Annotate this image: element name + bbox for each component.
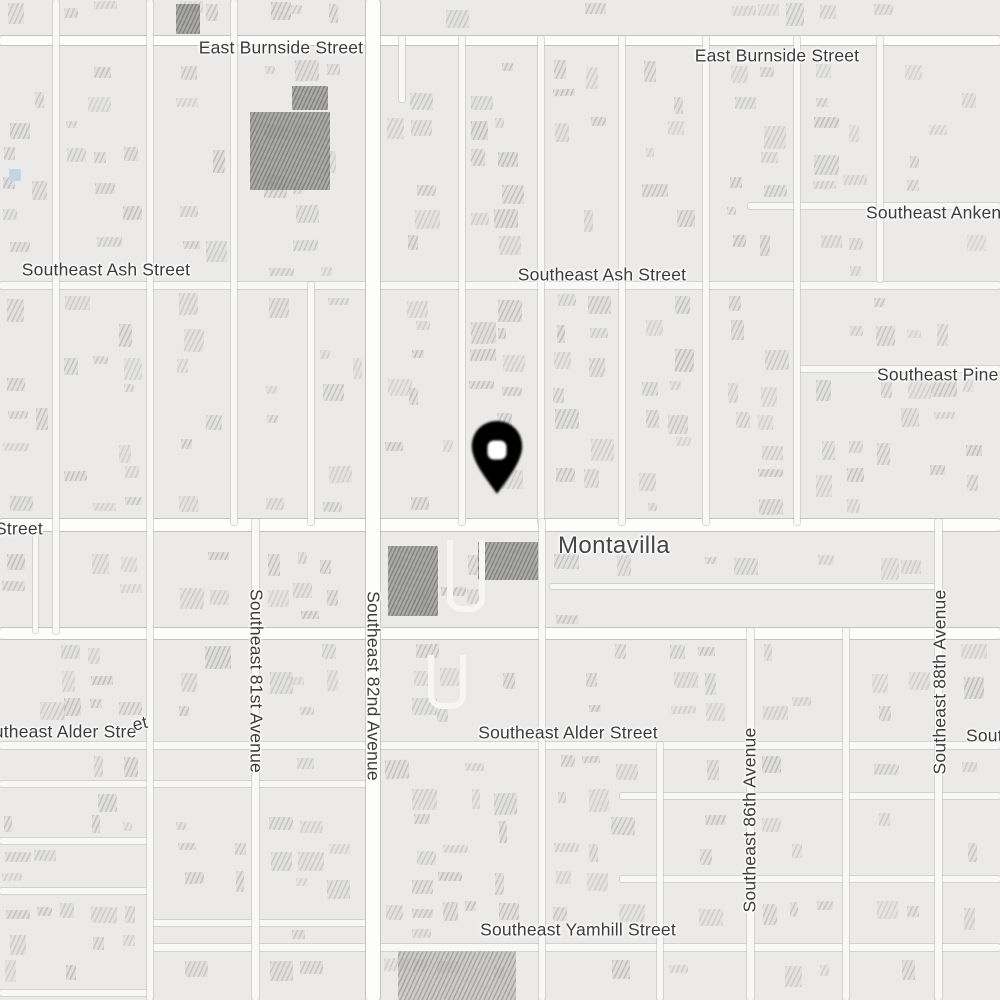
building xyxy=(10,123,30,139)
map-canvas[interactable]: East Burnside StreetEast Burnside Street… xyxy=(0,0,1000,1000)
building xyxy=(64,8,78,19)
building xyxy=(668,121,684,135)
minor-road xyxy=(550,584,935,589)
building xyxy=(814,117,839,128)
building xyxy=(553,388,564,403)
building xyxy=(813,181,836,190)
building xyxy=(612,960,630,979)
building xyxy=(556,325,565,344)
building xyxy=(582,755,600,763)
building xyxy=(849,266,860,276)
minor-road xyxy=(150,944,1000,951)
building xyxy=(267,589,288,606)
building xyxy=(758,469,783,477)
building xyxy=(66,121,77,128)
building xyxy=(792,844,802,858)
building xyxy=(671,706,696,715)
building xyxy=(40,702,65,721)
building xyxy=(707,760,720,780)
building xyxy=(764,184,787,197)
building xyxy=(323,502,342,512)
large-building xyxy=(388,546,438,616)
building xyxy=(472,789,480,809)
building xyxy=(646,410,659,428)
building xyxy=(494,792,517,815)
building xyxy=(124,384,134,393)
large-building xyxy=(398,946,516,1000)
pool-water xyxy=(9,169,21,181)
building xyxy=(590,328,608,338)
building xyxy=(465,901,476,911)
building xyxy=(123,822,132,831)
large-building xyxy=(250,112,330,190)
building xyxy=(902,960,915,980)
building xyxy=(554,60,566,79)
service-road-loop xyxy=(428,655,466,709)
building xyxy=(94,1,117,10)
building xyxy=(704,815,725,825)
building xyxy=(675,295,691,313)
building xyxy=(816,98,828,108)
building xyxy=(6,909,30,918)
large-building xyxy=(478,542,538,580)
building xyxy=(471,96,493,110)
building xyxy=(205,646,231,669)
building xyxy=(554,409,578,429)
building xyxy=(560,755,574,768)
building xyxy=(269,817,293,830)
building xyxy=(124,497,141,506)
building xyxy=(213,150,225,173)
building xyxy=(872,674,888,694)
building xyxy=(35,92,44,108)
building xyxy=(93,503,116,512)
building xyxy=(642,382,658,396)
building xyxy=(8,3,24,24)
building xyxy=(329,4,339,23)
building xyxy=(591,439,614,461)
building xyxy=(590,117,605,126)
building xyxy=(300,821,323,833)
building xyxy=(963,676,984,698)
building xyxy=(907,179,919,191)
building xyxy=(904,65,921,80)
building xyxy=(498,152,518,167)
building xyxy=(268,298,288,318)
building xyxy=(61,645,80,660)
building xyxy=(907,330,921,338)
building xyxy=(470,322,495,345)
building xyxy=(729,296,741,311)
building xyxy=(91,554,108,574)
minor-road xyxy=(459,36,465,525)
building xyxy=(584,210,593,232)
building xyxy=(3,209,17,220)
building xyxy=(176,822,186,830)
building xyxy=(961,644,987,659)
minor-road xyxy=(620,793,1000,799)
neighborhood-label: Montavilla xyxy=(558,532,670,560)
service-road-loop xyxy=(447,540,485,612)
building xyxy=(91,676,113,686)
building xyxy=(178,706,188,716)
minor-road xyxy=(657,742,663,1000)
building xyxy=(298,552,307,565)
building xyxy=(384,759,408,778)
building xyxy=(784,966,802,987)
building xyxy=(498,903,518,920)
building xyxy=(65,296,90,310)
building xyxy=(327,64,340,75)
building xyxy=(183,240,200,248)
building xyxy=(498,300,522,322)
building xyxy=(761,387,777,407)
building xyxy=(586,66,598,88)
building xyxy=(705,557,718,565)
minor-road xyxy=(231,0,237,525)
building xyxy=(646,148,655,157)
building xyxy=(877,443,890,465)
building xyxy=(408,235,418,250)
building xyxy=(735,412,750,429)
building xyxy=(92,815,100,833)
building xyxy=(209,590,228,605)
building xyxy=(119,445,131,463)
building xyxy=(820,965,829,976)
building xyxy=(352,358,361,379)
building xyxy=(822,440,836,459)
building xyxy=(499,236,521,255)
building xyxy=(705,702,724,720)
building xyxy=(414,814,430,824)
street-label-burnside-west: East Burnside Street xyxy=(199,38,364,59)
building xyxy=(270,671,293,693)
minor-road xyxy=(843,628,849,1000)
building xyxy=(760,234,771,255)
building xyxy=(178,842,196,849)
building xyxy=(293,240,318,252)
building xyxy=(880,558,898,580)
minor-road xyxy=(794,36,800,525)
building xyxy=(417,184,437,196)
building xyxy=(206,241,227,262)
large-building xyxy=(176,4,200,34)
building xyxy=(60,903,74,918)
building xyxy=(873,298,884,307)
building xyxy=(556,871,571,884)
building xyxy=(417,850,437,865)
building xyxy=(790,902,799,918)
building xyxy=(269,268,294,276)
building xyxy=(415,210,440,230)
building xyxy=(32,181,47,200)
building xyxy=(849,237,863,249)
building xyxy=(10,242,30,252)
building xyxy=(874,4,893,15)
building xyxy=(675,349,694,372)
building xyxy=(67,148,87,162)
building xyxy=(7,299,24,322)
building xyxy=(266,415,278,424)
large-building xyxy=(292,86,328,110)
building xyxy=(849,441,863,454)
street-label-ankeny: Southeast Ankeny Street xyxy=(866,203,1000,224)
building xyxy=(849,125,859,142)
building xyxy=(4,816,12,832)
building xyxy=(471,213,489,225)
building xyxy=(185,961,208,978)
building xyxy=(761,152,778,163)
building xyxy=(471,121,489,140)
building xyxy=(5,960,16,982)
building xyxy=(124,466,138,478)
building xyxy=(730,177,743,188)
building xyxy=(6,553,25,569)
building xyxy=(3,442,29,450)
building xyxy=(179,293,198,315)
minor-road xyxy=(147,0,153,1000)
building xyxy=(470,349,496,362)
building xyxy=(764,349,788,369)
building xyxy=(699,909,723,926)
building xyxy=(408,388,417,405)
building xyxy=(758,415,774,431)
building xyxy=(300,961,323,974)
building xyxy=(181,672,197,692)
building xyxy=(184,329,205,352)
building xyxy=(967,474,978,491)
building xyxy=(644,61,657,82)
building xyxy=(184,872,203,884)
building xyxy=(294,60,319,82)
building xyxy=(498,821,507,843)
building xyxy=(271,2,291,20)
building xyxy=(442,902,458,922)
building xyxy=(327,670,338,691)
building xyxy=(673,672,697,689)
building xyxy=(674,96,683,113)
minor-road xyxy=(399,36,405,102)
building xyxy=(588,789,609,812)
building xyxy=(64,698,81,717)
building xyxy=(176,98,199,108)
building xyxy=(910,156,919,168)
building xyxy=(792,697,811,706)
building xyxy=(90,699,102,708)
building xyxy=(764,644,772,661)
minor-road xyxy=(0,990,150,996)
building xyxy=(268,554,280,576)
building xyxy=(5,851,31,861)
building xyxy=(320,560,332,574)
building xyxy=(320,350,330,360)
minor-road xyxy=(33,525,38,633)
street-label-pine: Southeast Pine Street xyxy=(877,365,1000,386)
building xyxy=(180,206,198,217)
building xyxy=(763,904,778,926)
building xyxy=(900,560,921,575)
building xyxy=(589,358,605,377)
building xyxy=(705,673,717,696)
building xyxy=(235,843,246,855)
building xyxy=(412,909,433,919)
building xyxy=(879,813,890,826)
street-label-ave-81st: Southeast 81st Avenue xyxy=(246,589,267,773)
building xyxy=(731,320,744,340)
building xyxy=(329,844,350,854)
building xyxy=(967,235,986,251)
building xyxy=(879,706,891,721)
building xyxy=(762,446,783,460)
building xyxy=(386,118,404,140)
building xyxy=(554,843,579,852)
building xyxy=(66,965,76,980)
building xyxy=(900,408,918,428)
building xyxy=(615,644,627,659)
building xyxy=(4,147,15,160)
building xyxy=(759,498,783,515)
building xyxy=(8,410,28,418)
building xyxy=(763,706,788,720)
building xyxy=(64,358,78,375)
building xyxy=(446,10,469,28)
building xyxy=(37,906,52,916)
building xyxy=(443,844,468,852)
building xyxy=(558,792,566,803)
building xyxy=(588,296,611,314)
building xyxy=(465,763,484,771)
building xyxy=(503,354,526,371)
building xyxy=(181,439,192,449)
building xyxy=(469,381,494,390)
building xyxy=(552,89,574,97)
building xyxy=(323,384,344,401)
building xyxy=(206,4,219,22)
building xyxy=(179,588,204,610)
building xyxy=(785,3,804,26)
building xyxy=(10,935,26,955)
building xyxy=(670,381,681,390)
building xyxy=(411,497,429,511)
building xyxy=(10,496,33,511)
building xyxy=(122,935,134,946)
building xyxy=(327,880,350,899)
building xyxy=(494,118,503,128)
building xyxy=(179,496,198,512)
minor-road xyxy=(308,282,314,525)
building xyxy=(762,818,782,832)
building xyxy=(93,937,104,950)
building xyxy=(2,872,22,881)
building xyxy=(584,469,600,488)
building xyxy=(322,644,337,659)
building xyxy=(266,497,284,509)
building xyxy=(412,880,433,894)
building xyxy=(88,648,100,664)
building xyxy=(298,851,324,870)
building xyxy=(328,298,349,306)
major-road xyxy=(366,0,380,1000)
building xyxy=(732,6,757,17)
building xyxy=(120,584,142,594)
building xyxy=(502,63,513,72)
building xyxy=(585,2,606,13)
building xyxy=(964,908,976,930)
building xyxy=(64,470,88,481)
building xyxy=(876,326,895,346)
building xyxy=(758,4,779,16)
building xyxy=(934,412,955,420)
building xyxy=(62,671,75,692)
building xyxy=(670,645,685,659)
building xyxy=(929,125,947,136)
building xyxy=(847,499,860,513)
street-label-edge-southeast: Southeast xyxy=(966,726,1000,747)
building xyxy=(495,873,504,895)
building xyxy=(412,929,431,938)
building xyxy=(124,147,138,161)
building xyxy=(646,320,663,336)
building xyxy=(962,92,976,107)
building xyxy=(94,756,103,777)
minor-road xyxy=(53,0,59,634)
building xyxy=(177,359,189,373)
building xyxy=(416,321,430,330)
building xyxy=(411,120,432,136)
building xyxy=(438,872,462,881)
building xyxy=(555,123,570,142)
location-pin[interactable] xyxy=(469,420,525,500)
building xyxy=(295,205,318,223)
building xyxy=(291,677,304,685)
building xyxy=(816,380,831,401)
building xyxy=(586,873,607,892)
building xyxy=(407,300,429,318)
building xyxy=(471,149,485,167)
building xyxy=(124,357,142,379)
minor-road xyxy=(877,36,883,282)
building xyxy=(384,442,402,451)
minor-road xyxy=(0,838,150,844)
street-label-text: Southeast Alder Stre xyxy=(0,722,137,742)
building xyxy=(2,581,25,592)
building xyxy=(502,185,524,205)
building xyxy=(97,237,122,247)
street-label-alder-west: Southeast Alder Street xyxy=(0,722,152,743)
building xyxy=(761,756,781,773)
building xyxy=(763,126,786,149)
building xyxy=(327,590,338,606)
minor-road xyxy=(703,36,709,525)
building xyxy=(735,97,756,109)
building xyxy=(849,325,863,335)
building xyxy=(554,352,571,370)
building xyxy=(589,844,599,862)
minor-road xyxy=(620,876,1000,882)
street-label-yamhill: Southeast Yamhill Street xyxy=(480,920,676,941)
building xyxy=(876,901,897,919)
building xyxy=(412,350,424,358)
building xyxy=(296,758,313,769)
building xyxy=(733,235,746,247)
building xyxy=(698,647,715,656)
building xyxy=(610,816,635,835)
pin-hole xyxy=(488,441,507,460)
building xyxy=(266,386,277,394)
building xyxy=(815,475,831,497)
building xyxy=(91,907,117,924)
building xyxy=(119,324,133,347)
